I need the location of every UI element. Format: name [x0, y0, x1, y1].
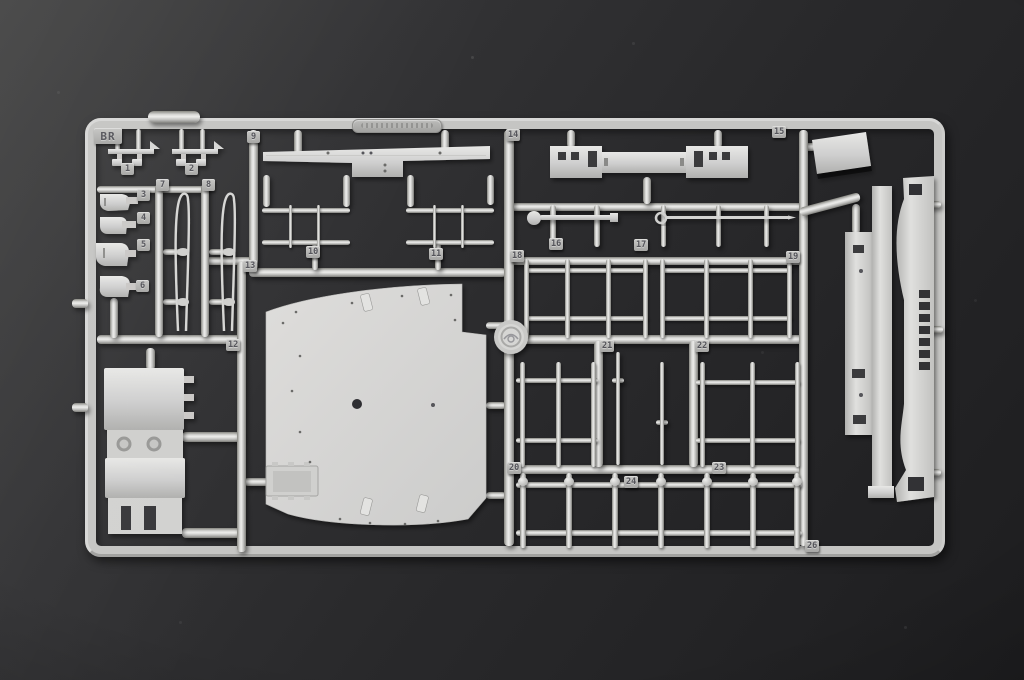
- dust-specks: [0, 0, 1, 1]
- part-number-tab-16: 16: [549, 238, 563, 250]
- part-number-tab-10: 10: [306, 246, 320, 258]
- part-number-tab-6: 6: [136, 280, 149, 292]
- sprue-code-tab: BR: [94, 128, 122, 144]
- part-number-tab-26: 26: [805, 540, 819, 552]
- part-number-tab-1: 1: [121, 163, 134, 175]
- part-number-tab-14: 14: [506, 129, 520, 141]
- part-number-tab-22: 22: [695, 340, 709, 352]
- part-number-tab-20: 20: [507, 462, 521, 474]
- part-number-tab-5: 5: [137, 239, 150, 251]
- part-number-tab-12: 12: [226, 339, 240, 351]
- embossed-stamp-text: [361, 123, 433, 128]
- part-number-tab-2: 2: [185, 163, 198, 175]
- part-number-tab-15: 15: [772, 126, 786, 138]
- embossed-stamp: [352, 119, 442, 133]
- part-number-tab-13: 13: [243, 260, 257, 272]
- part-number-tab-3: 3: [137, 189, 150, 201]
- part-number-tab-18: 18: [510, 250, 524, 262]
- part-number-tab-8: 8: [202, 179, 215, 191]
- part-number-tab-9: 9: [247, 131, 260, 143]
- part-number-tab-23: 23: [712, 462, 726, 474]
- part-number-tab-19: 19: [786, 251, 800, 263]
- part-number-tab-24: 24: [624, 476, 638, 488]
- photo-model-kit-sprue: BR 1278345691011121314151617181920212223…: [0, 0, 1024, 680]
- part-number-tab-21: 21: [600, 340, 614, 352]
- part-number-tab-17: 17: [634, 239, 648, 251]
- part-number-tab-7: 7: [156, 179, 169, 191]
- part-number-tabs: BR 1278345691011121314151617181920212223…: [0, 0, 1024, 680]
- part-number-tab-11: 11: [429, 248, 443, 260]
- part-number-tab-4: 4: [137, 212, 150, 224]
